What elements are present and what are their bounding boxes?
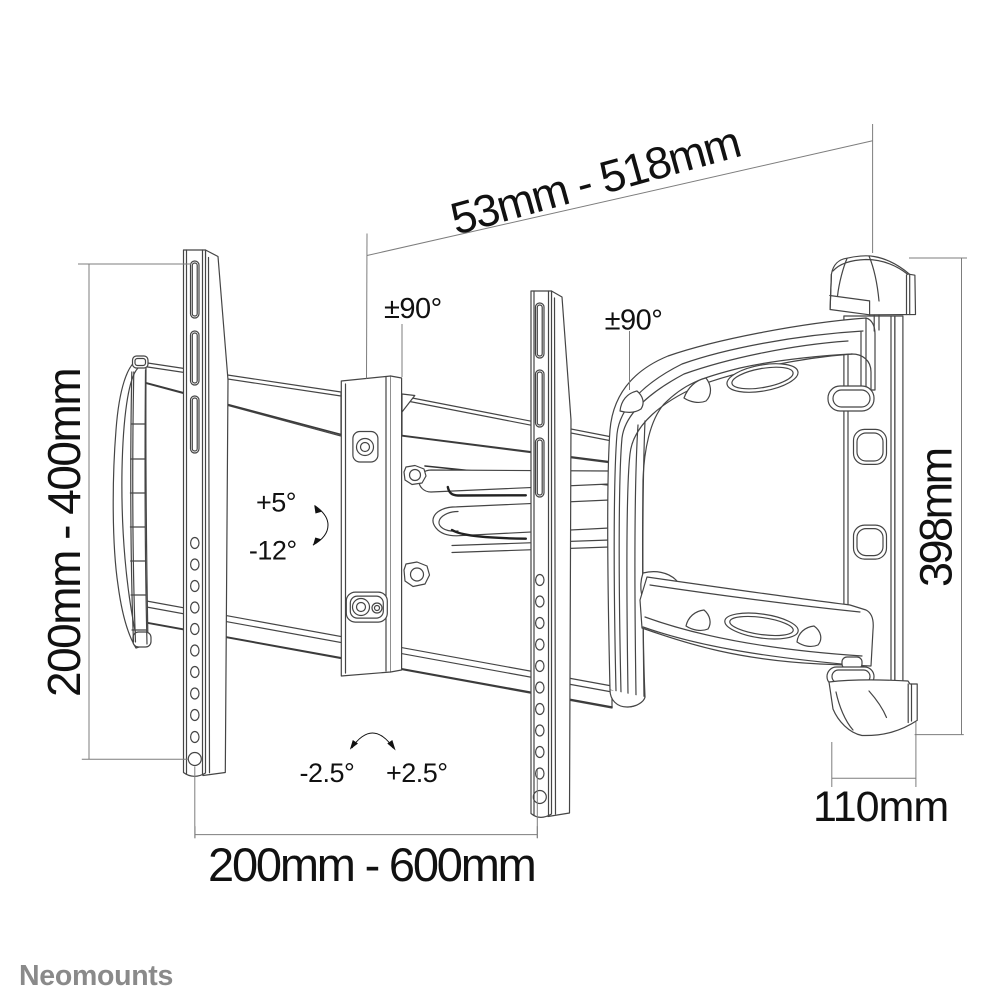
svg-text:±90°: ±90° (605, 305, 663, 337)
svg-text:-2.5°: -2.5° (300, 758, 355, 788)
svg-text:110mm: 110mm (813, 783, 948, 831)
svg-text:+5°: +5° (256, 488, 296, 518)
svg-text:Neomounts: Neomounts (19, 960, 173, 992)
svg-text:200mm - 600mm: 200mm - 600mm (208, 838, 535, 891)
svg-text:+2.5°: +2.5° (386, 758, 448, 788)
svg-text:398mm: 398mm (911, 449, 962, 587)
svg-text:200mm - 400mm: 200mm - 400mm (38, 369, 90, 697)
svg-text:±90°: ±90° (384, 293, 442, 325)
svg-text:-12°: -12° (249, 536, 297, 566)
